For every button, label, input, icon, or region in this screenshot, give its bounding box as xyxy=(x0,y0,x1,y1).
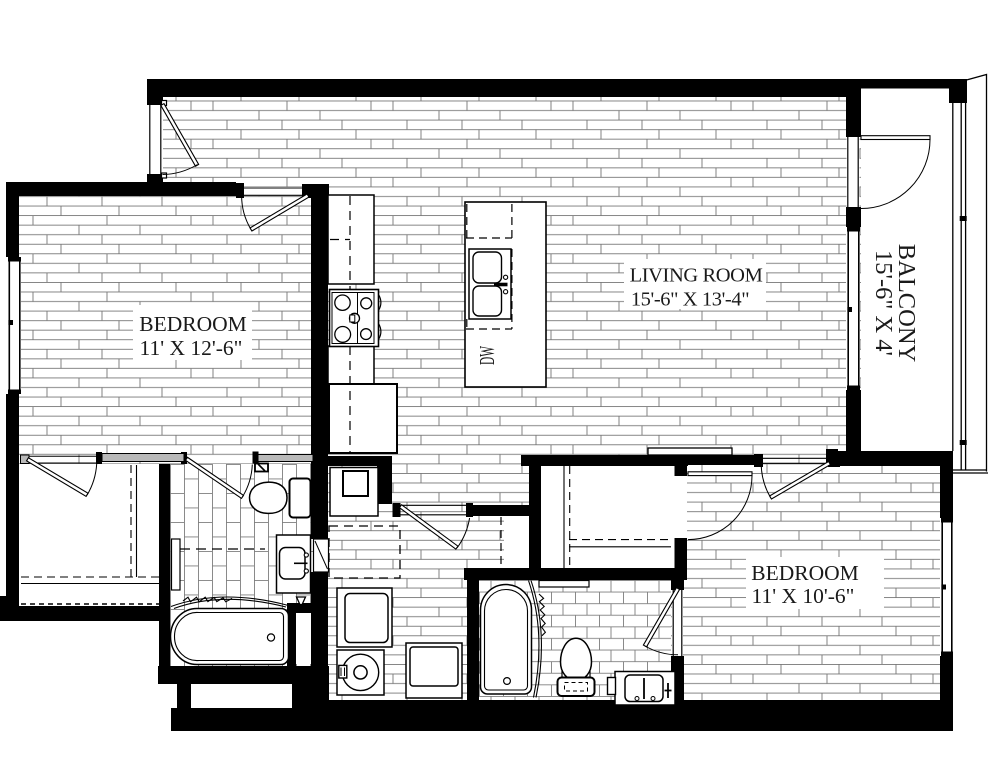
svg-text:DW: DW xyxy=(475,346,499,365)
svg-text:11' X 10'-6": 11' X 10'-6" xyxy=(752,584,855,608)
svg-text:15'-6" X 4': 15'-6" X 4' xyxy=(870,250,897,356)
svg-text:11' X 12'-6": 11' X 12'-6" xyxy=(140,336,243,360)
svg-text:LIVING ROOM: LIVING ROOM xyxy=(630,265,763,287)
svg-text:BEDROOM: BEDROOM xyxy=(139,312,247,336)
svg-text:BEDROOM: BEDROOM xyxy=(751,561,859,585)
svg-text:15'-6" X 13'-4": 15'-6" X 13'-4" xyxy=(631,289,749,311)
